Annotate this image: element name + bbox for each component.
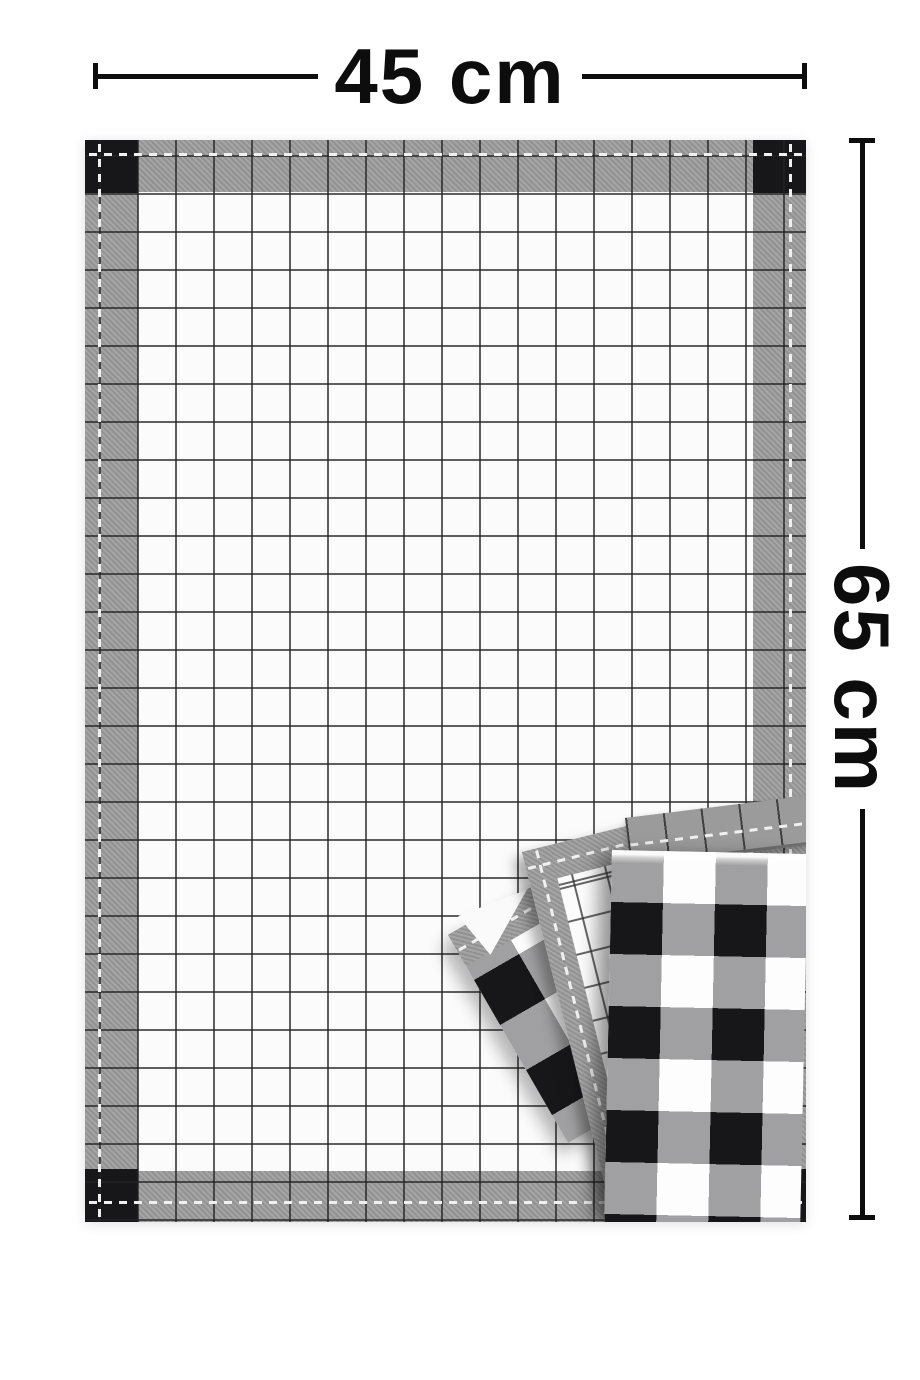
height-dimension-label: 65 cm <box>823 549 901 808</box>
width-dimension: 45 cm <box>93 38 807 114</box>
dimension-line-left-segment <box>98 74 318 79</box>
dimension-tick-bottom <box>849 1215 875 1220</box>
product-image: 45 cm 65 cm <box>0 0 920 1380</box>
width-dimension-label: 45 cm <box>318 37 581 115</box>
dimension-tick-right <box>802 63 807 89</box>
dimension-line-top-segment <box>860 143 865 549</box>
folded-towel-buffalo-front <box>604 850 806 1222</box>
folded-towels-stack <box>85 140 806 1222</box>
fold-roll-highlight <box>612 850 806 867</box>
folded-towel-hem-stitch <box>630 819 806 846</box>
dimension-line-right-segment <box>582 74 802 79</box>
height-dimension: 65 cm <box>836 138 888 1220</box>
dimension-line-bottom-segment <box>860 809 865 1215</box>
